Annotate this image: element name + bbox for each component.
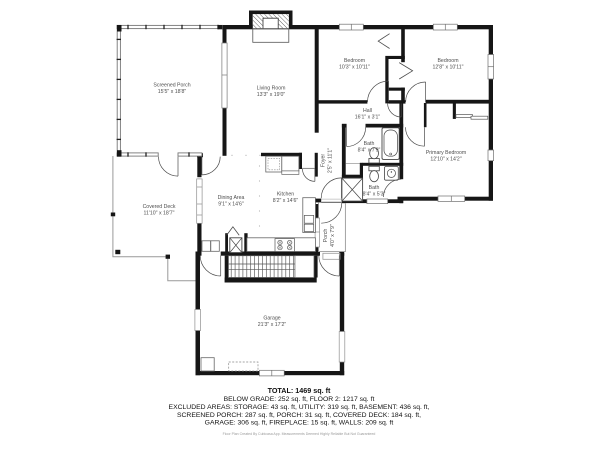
- svg-text:Bedroom: Bedroom: [437, 58, 458, 64]
- svg-text:SCREENED PORCH: 287 sq. ft, PO: SCREENED PORCH: 287 sq. ft, PORCH: 31 sq…: [177, 412, 421, 419]
- svg-text:Bedroom: Bedroom: [344, 58, 365, 64]
- svg-text:Bath: Bath: [369, 185, 380, 191]
- svg-text:Bath: Bath: [364, 141, 375, 147]
- svg-text:GARAGE: 306 sq. ft, FIREPLACE:: GARAGE: 306 sq. ft, FIREPLACE: 15 sq. ft…: [205, 420, 394, 427]
- svg-text:Kitchen: Kitchen: [277, 192, 294, 198]
- svg-text:11'10" x 18'7": 11'10" x 18'7": [144, 211, 175, 217]
- svg-text:Porch: Porch: [323, 229, 329, 243]
- svg-text:10'3" x 10'11": 10'3" x 10'11": [339, 65, 370, 71]
- svg-text:8'2" x 14'6": 8'2" x 14'6": [273, 198, 299, 204]
- svg-text:2'5" x 11'1": 2'5" x 11'1": [328, 148, 334, 173]
- svg-text:Primary Bedroom: Primary Bedroom: [426, 150, 466, 156]
- svg-text:Hall: Hall: [363, 108, 372, 114]
- svg-text:8'4" x 7'9": 8'4" x 7'9": [358, 148, 381, 154]
- svg-text:Living Room: Living Room: [257, 86, 286, 92]
- svg-text:EXCLUDED AREAS: STORAGE: 43 sq: EXCLUDED AREAS: STORAGE: 43 sq. ft, UTIL…: [169, 404, 430, 411]
- svg-text:12'10" x 14'2": 12'10" x 14'2": [430, 157, 461, 163]
- svg-text:BELOW GRADE: 252 sq. ft, FLOOR: BELOW GRADE: 252 sq. ft, FLOOR 2: 1217 s…: [224, 396, 375, 403]
- svg-text:12'8" x 10'11": 12'8" x 10'11": [433, 65, 464, 71]
- svg-text:21'3" x 17'2": 21'3" x 17'2": [258, 322, 287, 328]
- svg-text:Floor Plan Created By Cubicasa: Floor Plan Created By Cubicasa App. Meas…: [223, 432, 376, 436]
- svg-text:Foyer: Foyer: [321, 154, 327, 168]
- svg-text:Screened Porch: Screened Porch: [153, 83, 190, 89]
- svg-text:13'3" x 19'0": 13'3" x 19'0": [257, 92, 286, 98]
- svg-text:4'0" x 7'9": 4'0" x 7'9": [330, 224, 336, 247]
- svg-text:8'4" x 5'3": 8'4" x 5'3": [363, 192, 386, 198]
- svg-text:TOTAL: 1469 sq. ft: TOTAL: 1469 sq. ft: [268, 386, 331, 395]
- svg-text:9'1" x 14'6": 9'1" x 14'6": [218, 202, 244, 208]
- svg-text:15'5" x 18'8": 15'5" x 18'8": [158, 89, 187, 95]
- svg-text:Garage: Garage: [263, 316, 280, 322]
- svg-text:Covered Deck: Covered Deck: [143, 204, 176, 210]
- svg-text:Dining Area: Dining Area: [218, 195, 245, 201]
- svg-text:16'1" x 3'1": 16'1" x 3'1": [355, 115, 381, 121]
